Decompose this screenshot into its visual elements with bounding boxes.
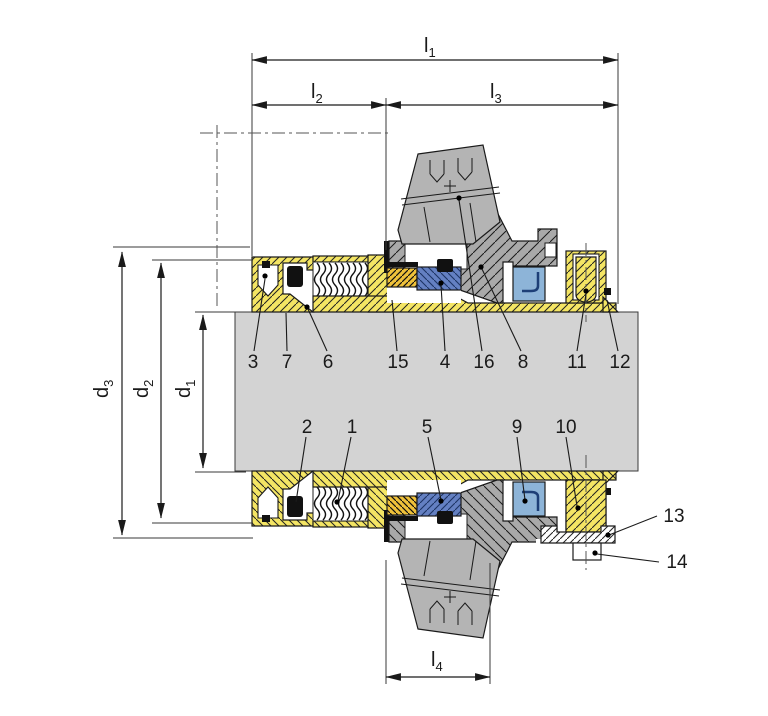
dim-label-d1: d1 — [173, 380, 198, 398]
svg-text:7: 7 — [282, 352, 293, 373]
dim-label-l2: l2 — [311, 81, 323, 106]
seal-cross-section-drawing: l1 l2 l3 l4 d3 d2 d1 3 7 6 15 4 16 8 11 … — [0, 0, 768, 716]
svg-text:4: 4 — [440, 352, 451, 373]
svg-text:2: 2 — [302, 417, 313, 438]
svg-text:8: 8 — [518, 352, 529, 373]
svg-text:13: 13 — [663, 506, 684, 527]
dim-label-l1: l1 — [424, 35, 436, 60]
dim-label-l3: l3 — [490, 81, 502, 106]
svg-text:3: 3 — [248, 352, 259, 373]
svg-text:1: 1 — [347, 417, 358, 438]
svg-text:9: 9 — [512, 417, 523, 438]
svg-text:10: 10 — [555, 417, 576, 438]
svg-text:15: 15 — [387, 352, 408, 373]
svg-text:6: 6 — [323, 352, 334, 373]
drawing-canvas: l1 l2 l3 l4 d3 d2 d1 3 7 6 15 4 16 8 11 … — [0, 0, 768, 716]
dim-label-d2: d2 — [131, 380, 156, 398]
seal-top-half — [252, 145, 618, 312]
part-callout-13: 13 — [605, 506, 684, 538]
dim-label-d3: d3 — [91, 380, 116, 398]
dim-label-l4: l4 — [431, 649, 443, 674]
svg-text:11: 11 — [567, 352, 587, 373]
svg-text:12: 12 — [609, 352, 630, 373]
svg-text:5: 5 — [422, 417, 433, 438]
shaft — [235, 312, 638, 471]
svg-text:16: 16 — [473, 352, 494, 373]
svg-text:14: 14 — [666, 552, 688, 573]
